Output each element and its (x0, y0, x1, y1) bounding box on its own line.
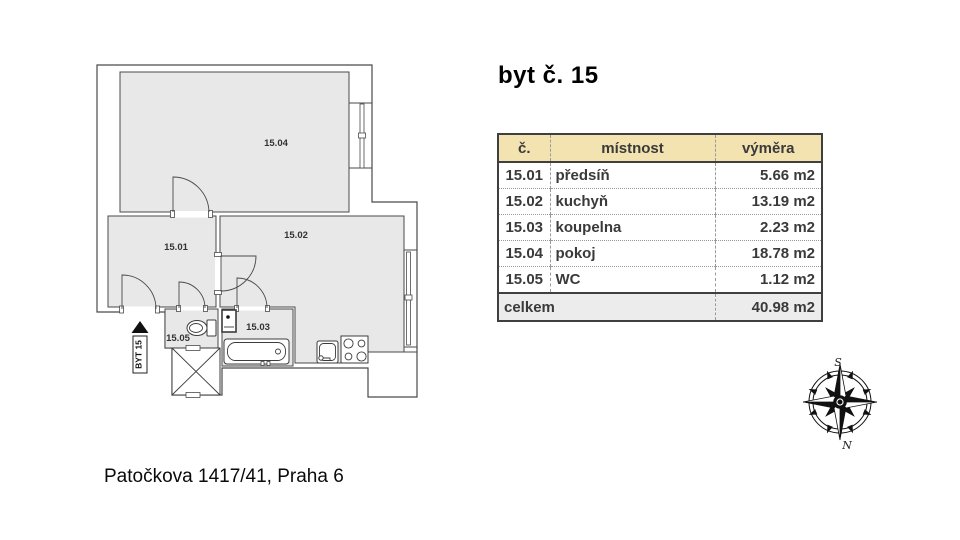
room-name-cell: pokoj (550, 241, 715, 267)
table-row: 15.01předsíň5.66 m2 (498, 162, 822, 189)
room-label-15.02: 15.02 (284, 230, 308, 241)
room-label-15.05: 15.05 (166, 333, 190, 344)
room-area-cell: 18.78 m2 (715, 241, 822, 267)
entry-marker: BYT 15 (132, 321, 149, 373)
unit-marker-label: BYT 15 (134, 340, 144, 369)
page-title: byt č. 15 (498, 62, 599, 90)
kitchen-sink (317, 341, 338, 363)
header-area: výměra (715, 134, 822, 162)
bathtub (224, 339, 289, 366)
room-area-cell: 13.19 m2 (715, 189, 822, 215)
shaft (172, 346, 220, 398)
room-label-15.01: 15.01 (164, 242, 188, 253)
room-label-15.03: 15.03 (246, 322, 270, 333)
room-name-cell: WC (550, 267, 715, 294)
room-number-cell: 15.05 (498, 267, 550, 294)
room-number-cell: 15.03 (498, 215, 550, 241)
room-number-cell: 15.02 (498, 189, 550, 215)
header-number: č. (498, 134, 550, 162)
compass-rose-icon: S N (803, 356, 877, 452)
toilet (187, 320, 216, 336)
compass-n-label: N (841, 439, 852, 452)
table-row: 15.04pokoj18.78 m2 (498, 241, 822, 267)
room-area-cell: 2.23 m2 (715, 215, 822, 241)
compass-s-label: S (834, 356, 842, 369)
table-row: 15.05WC1.12 m2 (498, 267, 822, 294)
address-line: Patočkova 1417/41, Praha 6 (104, 466, 344, 488)
room-area-cell: 1.12 m2 (715, 267, 822, 294)
room-area-cell: 5.66 m2 (715, 162, 822, 189)
header-room: místnost (550, 134, 715, 162)
table-row: 15.03koupelna2.23 m2 (498, 215, 822, 241)
entry-arrow-icon (132, 321, 149, 333)
total-value-cell: 40.98 m2 (715, 293, 822, 321)
table-row: 15.02kuchyň13.19 m2 (498, 189, 822, 215)
stove (341, 336, 368, 363)
room-label-15.04: 15.04 (264, 138, 288, 149)
room-15.01 (108, 216, 216, 307)
room-number-cell: 15.01 (498, 162, 550, 189)
room-number-cell: 15.04 (498, 241, 550, 267)
room-name-cell: koupelna (550, 215, 715, 241)
bathroom-sink (222, 310, 236, 332)
area-table-body: 15.01předsíň5.66 m215.02kuchyň13.19 m215… (498, 162, 822, 293)
room-name-cell: předsíň (550, 162, 715, 189)
area-table: č. místnost výměra 15.01předsíň5.66 m215… (497, 133, 823, 322)
room-name-cell: kuchyň (550, 189, 715, 215)
table-total-row: celkem 40.98 m2 (498, 293, 822, 321)
table-header-row: č. místnost výměra (498, 134, 822, 162)
total-label-cell: celkem (498, 293, 715, 321)
room-15.04 (120, 72, 349, 212)
